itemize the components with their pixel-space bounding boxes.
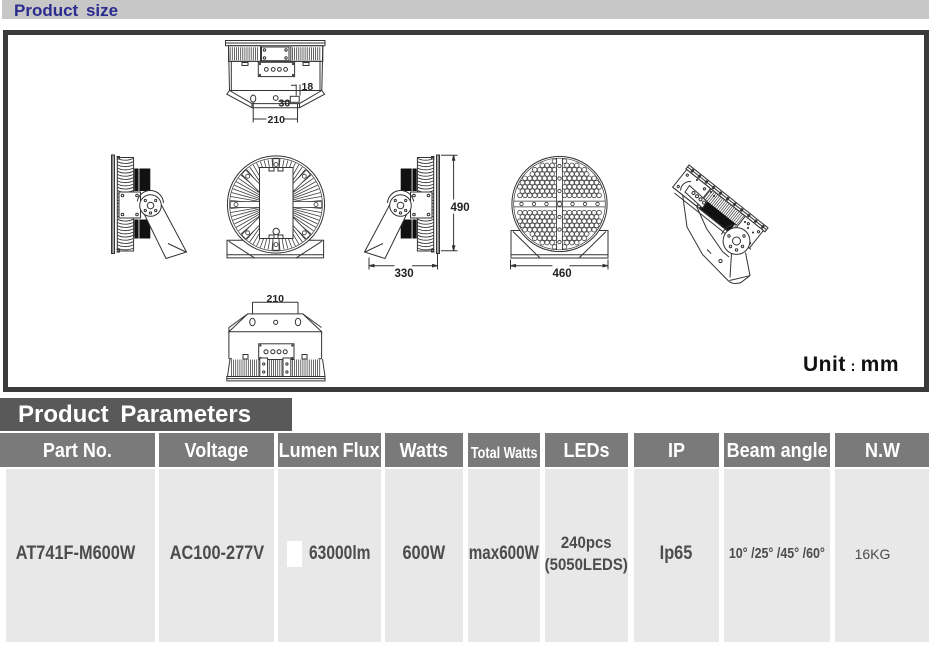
svg-text:330: 330 — [395, 268, 414, 280]
svg-text:210: 210 — [268, 114, 286, 126]
svg-text:18: 18 — [302, 81, 314, 93]
svg-text:490: 490 — [451, 202, 470, 214]
svg-text:460: 460 — [553, 268, 572, 280]
svg-text:30: 30 — [279, 97, 291, 109]
svg-text:210: 210 — [267, 293, 285, 305]
